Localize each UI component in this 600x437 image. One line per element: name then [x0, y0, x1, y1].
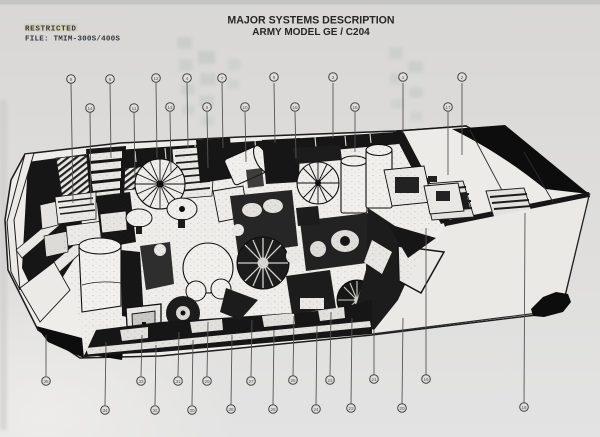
svg-text:29: 29: [204, 379, 210, 384]
svg-text:10: 10: [242, 105, 248, 110]
svg-text:26: 26: [270, 407, 276, 412]
svg-text:22: 22: [348, 406, 354, 411]
svg-text:14: 14: [87, 106, 93, 111]
svg-text:24: 24: [313, 407, 319, 412]
svg-text:9: 9: [70, 77, 73, 82]
svg-text:30: 30: [189, 408, 195, 413]
svg-text:5: 5: [206, 105, 209, 110]
svg-text:6: 6: [273, 75, 276, 80]
svg-text:19: 19: [423, 377, 429, 382]
svg-text:17: 17: [445, 105, 451, 110]
svg-text:34: 34: [102, 408, 108, 413]
svg-text:FILE: TMIM-300S/400S: FILE: TMIM-300S/400S: [25, 36, 120, 44]
svg-text:18: 18: [521, 405, 527, 410]
svg-text:ARMY MODEL GE / C204: ARMY MODEL GE / C204: [252, 27, 370, 38]
svg-text:31: 31: [175, 379, 181, 384]
svg-text:16: 16: [352, 105, 358, 110]
svg-text:MAJOR SYSTEMS DESCRIPTION: MAJOR SYSTEMS DESCRIPTION: [227, 15, 394, 27]
svg-text:33: 33: [138, 379, 144, 384]
svg-text:8: 8: [109, 77, 112, 82]
svg-text:11: 11: [132, 106, 137, 111]
svg-text:1: 1: [402, 75, 405, 80]
svg-text:20: 20: [399, 406, 405, 411]
svg-text:2: 2: [461, 75, 464, 80]
svg-text:35: 35: [43, 379, 49, 384]
svg-text:RESTRICTED: RESTRICTED: [25, 26, 77, 34]
svg-text:25: 25: [290, 378, 296, 383]
svg-text:12: 12: [153, 76, 159, 81]
svg-text:7: 7: [221, 76, 224, 81]
svg-text:4: 4: [186, 76, 189, 81]
svg-text:21: 21: [371, 377, 377, 382]
svg-text:15: 15: [292, 105, 298, 110]
svg-text:13: 13: [167, 105, 173, 110]
svg-text:23: 23: [327, 378, 333, 383]
svg-text:28: 28: [228, 407, 234, 412]
svg-text:32: 32: [152, 408, 158, 413]
svg-text:27: 27: [248, 379, 254, 384]
svg-text:3: 3: [332, 75, 335, 80]
